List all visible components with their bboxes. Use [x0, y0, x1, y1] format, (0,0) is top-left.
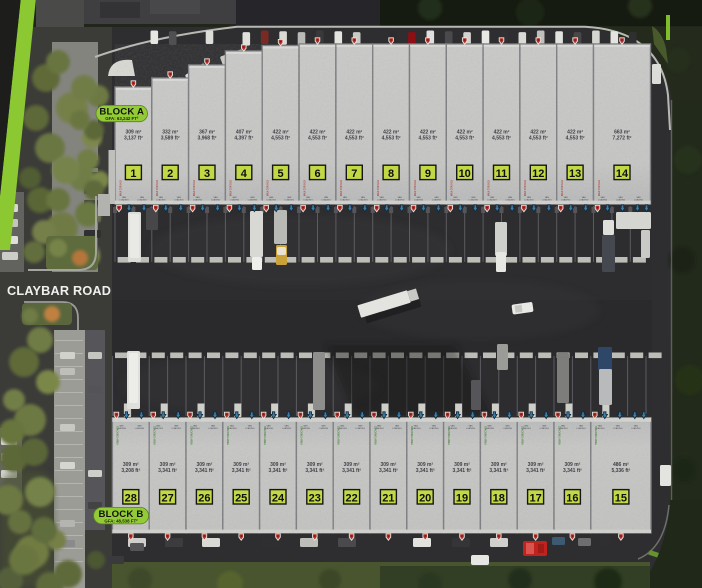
svg-text:4,553 ft²: 4,553 ft²: [566, 135, 585, 141]
svg-text:LOADING: LOADING: [211, 198, 221, 201]
svg-text:18: 18: [493, 492, 505, 504]
svg-text:LOADING: LOADING: [414, 198, 424, 201]
svg-text:3,341 ft²: 3,341 ft²: [416, 468, 435, 474]
svg-text:LOADING: LOADING: [451, 198, 461, 201]
svg-text:LOADING: LOADING: [487, 198, 497, 201]
svg-text:MAX CVR 8-13: MAX CVR 8-13: [340, 179, 343, 196]
svg-text:3,589 ft²: 3,589 ft²: [161, 135, 180, 141]
svg-text:4,553 ft²: 4,553 ft²: [418, 135, 437, 141]
svg-text:4,553 ft²: 4,553 ft²: [382, 135, 401, 141]
svg-text:LOADING: LOADING: [595, 427, 605, 430]
svg-text:MAX CVR 8-13: MAX CVR 8-13: [487, 179, 490, 196]
svg-text:LOADING: LOADING: [598, 198, 608, 201]
svg-text:12: 12: [532, 168, 544, 180]
svg-text:1: 1: [130, 168, 136, 180]
svg-text:MAX CVR 8-13: MAX CVR 8-13: [598, 179, 601, 196]
svg-text:LOADING: LOADING: [579, 198, 589, 201]
svg-text:LOADING: LOADING: [466, 427, 476, 430]
svg-text:LOADING: LOADING: [392, 427, 402, 430]
svg-text:MAX CVR 8-13: MAX CVR 8-13: [377, 179, 380, 196]
svg-text:MAX CVR 8-13: MAX CVR 8-13: [414, 179, 417, 196]
svg-text:LOADING: LOADING: [485, 427, 495, 430]
svg-text:GFA: 48,538 FT²: GFA: 48,538 FT²: [104, 518, 138, 523]
svg-text:3,341 ft²: 3,341 ft²: [379, 468, 398, 474]
svg-text:4,397 ft²: 4,397 ft²: [234, 135, 253, 141]
svg-text:3,341 ft²: 3,341 ft²: [158, 468, 177, 474]
svg-text:LOADING: LOADING: [358, 198, 368, 201]
svg-text:3,341 ft²: 3,341 ft²: [489, 468, 508, 474]
svg-text:LOADING: LOADING: [469, 198, 479, 201]
svg-text:MAX CVR 8-13: MAX CVR 8-13: [303, 179, 306, 196]
svg-text:LOADING: LOADING: [558, 427, 568, 430]
svg-text:LOADING: LOADING: [230, 198, 240, 201]
svg-text:24: 24: [272, 492, 285, 504]
svg-text:4,553 ft²: 4,553 ft²: [271, 135, 290, 141]
svg-text:23: 23: [309, 492, 321, 504]
svg-text:LOADING: LOADING: [524, 198, 534, 201]
svg-text:15: 15: [615, 492, 627, 504]
svg-text:7,272 ft²: 7,272 ft²: [613, 135, 632, 141]
svg-text:LOADING: LOADING: [356, 427, 366, 430]
svg-text:6: 6: [314, 168, 320, 180]
svg-text:10: 10: [459, 168, 471, 180]
svg-text:GFA: 63,242 FT²: GFA: 63,242 FT²: [105, 116, 139, 121]
svg-text:3,341 ft²: 3,341 ft²: [342, 468, 361, 474]
svg-text:MAX CVR 8-13: MAX CVR 8-13: [524, 179, 527, 196]
svg-text:3,208 ft²: 3,208 ft²: [121, 468, 140, 474]
svg-text:LOADING: LOADING: [303, 198, 313, 201]
svg-text:3,968 ft²: 3,968 ft²: [198, 135, 217, 141]
svg-text:LOADING: LOADING: [135, 427, 145, 430]
svg-text:LOADING: LOADING: [193, 198, 203, 201]
svg-text:LOADING: LOADING: [321, 198, 331, 201]
svg-text:5,336 ft²: 5,336 ft²: [611, 468, 630, 474]
svg-text:LOADING: LOADING: [505, 198, 515, 201]
svg-text:LOADING: LOADING: [522, 427, 532, 430]
svg-text:LOADING: LOADING: [613, 427, 623, 430]
svg-text:14: 14: [616, 168, 629, 180]
svg-text:LOADING: LOADING: [190, 427, 200, 430]
svg-text:LOADING: LOADING: [301, 427, 311, 430]
svg-text:LOADING: LOADING: [319, 427, 329, 430]
svg-text:4,553 ft²: 4,553 ft²: [492, 135, 511, 141]
svg-text:9: 9: [425, 168, 431, 180]
svg-text:LOADING: LOADING: [503, 427, 513, 430]
svg-text:LOADING: LOADING: [411, 427, 421, 430]
svg-text:LOADING: LOADING: [245, 427, 255, 430]
svg-text:17: 17: [529, 492, 541, 504]
svg-text:CLAYBAR ROAD: CLAYBAR ROAD: [7, 284, 111, 298]
svg-text:LOADING: LOADING: [227, 427, 237, 430]
svg-text:LOADING: LOADING: [432, 198, 442, 201]
svg-text:3,341 ft²: 3,341 ft²: [232, 468, 251, 474]
svg-text:LOADING: LOADING: [117, 427, 127, 430]
svg-text:LOADING: LOADING: [154, 427, 164, 430]
svg-text:LOADING: LOADING: [395, 198, 405, 201]
svg-text:MAX CVR 8-13: MAX CVR 8-13: [193, 179, 196, 196]
svg-text:LOADING: LOADING: [172, 427, 182, 430]
svg-text:3,341 ft²: 3,341 ft²: [563, 468, 582, 474]
svg-text:4,553 ft²: 4,553 ft²: [345, 135, 364, 141]
svg-text:MAX CVR 8-13: MAX CVR 8-13: [267, 179, 270, 196]
svg-text:LOADING: LOADING: [174, 198, 184, 201]
svg-text:LOADING: LOADING: [264, 427, 274, 430]
svg-text:4,553 ft²: 4,553 ft²: [529, 135, 548, 141]
svg-text:LOADING: LOADING: [282, 427, 292, 430]
svg-text:LOADING: LOADING: [340, 198, 350, 201]
svg-text:LOADING: LOADING: [338, 427, 348, 430]
svg-text:MAX CVR 8-13: MAX CVR 8-13: [451, 179, 454, 196]
svg-text:LOADING: LOADING: [429, 427, 439, 430]
svg-text:4: 4: [241, 168, 248, 180]
svg-text:5: 5: [278, 168, 284, 180]
svg-text:MAX CVR 8-13: MAX CVR 8-13: [119, 179, 122, 196]
svg-text:8: 8: [388, 168, 394, 180]
svg-text:LOADING: LOADING: [448, 427, 458, 430]
svg-text:LOADING: LOADING: [377, 198, 387, 201]
svg-text:27: 27: [161, 492, 173, 504]
svg-text:4,553 ft²: 4,553 ft²: [455, 135, 474, 141]
svg-text:LOADING: LOADING: [208, 427, 218, 430]
svg-text:4,553 ft²: 4,553 ft²: [308, 135, 327, 141]
svg-text:11: 11: [496, 168, 508, 180]
svg-text:MAX CVR 8-13: MAX CVR 8-13: [561, 179, 564, 196]
svg-text:26: 26: [198, 492, 210, 504]
svg-text:3,341 ft²: 3,341 ft²: [269, 468, 288, 474]
svg-text:2: 2: [167, 168, 173, 180]
svg-text:3,341 ft²: 3,341 ft²: [453, 468, 472, 474]
svg-text:LOADING: LOADING: [576, 427, 586, 430]
svg-text:LOADING: LOADING: [156, 198, 166, 201]
svg-text:LOADING: LOADING: [137, 198, 147, 201]
svg-text:LOADING: LOADING: [248, 198, 258, 201]
svg-text:3,137 ft²: 3,137 ft²: [124, 135, 143, 141]
svg-text:22: 22: [345, 492, 357, 504]
svg-text:LOADING: LOADING: [374, 427, 384, 430]
svg-text:LOADING: LOADING: [616, 198, 626, 201]
svg-text:16: 16: [566, 492, 578, 504]
svg-text:3: 3: [204, 168, 210, 180]
svg-text:MAX CVR 8-13: MAX CVR 8-13: [230, 179, 233, 196]
svg-text:19: 19: [456, 492, 468, 504]
svg-text:LOADING: LOADING: [542, 198, 552, 201]
svg-text:LOADING: LOADING: [634, 198, 644, 201]
svg-text:MAX CVR 8-13: MAX CVR 8-13: [156, 179, 159, 196]
svg-text:25: 25: [235, 492, 247, 504]
svg-text:20: 20: [419, 492, 431, 504]
svg-text:LOADING: LOADING: [119, 198, 129, 201]
svg-text:28: 28: [125, 492, 137, 504]
svg-text:LOADING: LOADING: [561, 198, 571, 201]
svg-text:3,341 ft²: 3,341 ft²: [195, 468, 214, 474]
svg-text:LOADING: LOADING: [540, 427, 550, 430]
svg-text:3,341 ft²: 3,341 ft²: [305, 468, 324, 474]
svg-text:7: 7: [351, 168, 357, 180]
svg-text:LOADING: LOADING: [285, 198, 295, 201]
svg-text:3,341 ft²: 3,341 ft²: [526, 468, 545, 474]
svg-text:13: 13: [569, 168, 581, 180]
svg-text:21: 21: [382, 492, 394, 504]
svg-text:LOADING: LOADING: [631, 427, 641, 430]
svg-text:LOADING: LOADING: [267, 198, 277, 201]
